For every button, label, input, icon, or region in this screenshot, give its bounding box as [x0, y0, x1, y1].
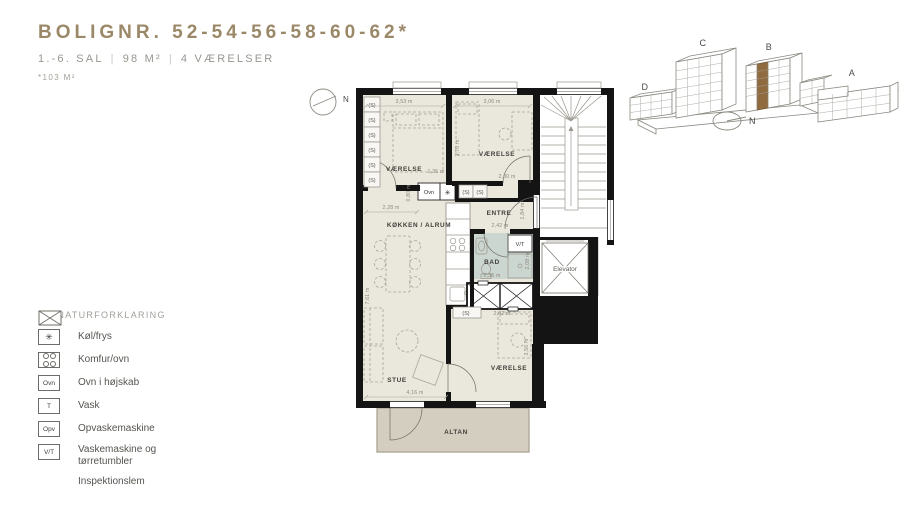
- room-label-bedroom2: VÆRELSE: [479, 151, 515, 158]
- room-label-bedroom3: VÆRELSE: [491, 365, 527, 372]
- dim-living-width: 4,16 m: [406, 390, 423, 396]
- oven-unit-label: Ovn: [424, 190, 434, 196]
- plan-compass: N: [310, 89, 349, 115]
- compass-north-label: N: [343, 95, 349, 104]
- elevator: Elevator: [542, 241, 588, 293]
- room-label-bedroom1: VÆRELSE: [386, 166, 422, 173]
- dim-living-depth: 7,61 m: [365, 287, 371, 304]
- closet-marker: (S): [368, 133, 375, 139]
- room-label-living: STUE: [387, 377, 407, 384]
- dim-bedroom3-depth: 3,56 m: [524, 338, 530, 355]
- elevator-label: Elevator: [553, 266, 578, 273]
- dim-bedroom2-bottom: 2,00 m: [498, 174, 515, 180]
- closet-marker: (S): [476, 190, 483, 196]
- room-label-bath: BAD: [484, 259, 500, 266]
- stairwell-floor: [540, 95, 607, 237]
- dim-bedroom1-width: 3,53 m: [395, 99, 412, 105]
- dim-bath-depth: 2,08 m: [525, 252, 531, 269]
- dim-bedroom1-inner: 1,35 m: [427, 169, 444, 175]
- closet-marker: (S): [368, 148, 375, 154]
- dim-bedroom1-bottom: 2,28 m: [382, 205, 399, 211]
- dim-bedroom2-depth: 3,70 m: [455, 139, 461, 156]
- dim-entry-door: 1,84 m: [520, 202, 526, 219]
- legend-label: Inspektionslem: [78, 476, 145, 488]
- building-a-label: A: [849, 68, 856, 78]
- building-b: B: [746, 42, 802, 112]
- dim-bath-width: 2,36 m: [483, 273, 500, 279]
- dim-bedroom1-door: 0,80 m: [406, 184, 412, 201]
- dim-entry-width: 2,42 m: [491, 223, 508, 229]
- room-label-kitchen: KØKKEN / ALRUM: [387, 222, 451, 229]
- site-plan: D C B: [630, 38, 898, 134]
- legend-item-inspection-hatch: Inspektionslem: [38, 474, 288, 490]
- closet-marker: (S): [368, 163, 375, 169]
- building-d: D: [630, 82, 682, 120]
- compass-north-label: N: [749, 116, 756, 126]
- building-b-label: B: [766, 42, 773, 52]
- fridge-snowflake-icon: ✳: [445, 189, 451, 197]
- closet-marker: (S): [368, 178, 375, 184]
- room-label-balcony: ALTAN: [444, 429, 468, 436]
- plan-and-site-svg: Ovn ✳ V/T: [0, 0, 905, 460]
- building-c: C: [676, 38, 736, 118]
- legend-item-shaft: [38, 497, 288, 513]
- closet-marker: (S): [368, 118, 375, 124]
- closet-marker: (S): [462, 311, 469, 317]
- dim-bedroom2-width: 3,06 m: [483, 99, 500, 105]
- dim-bedroom3-width: 2,42 m: [493, 311, 510, 317]
- installation-shaft: [467, 281, 533, 311]
- closet-marker: (S): [462, 190, 469, 196]
- washer-dryer-label: V/T: [516, 242, 525, 248]
- room-label-entry: ENTRE: [487, 210, 512, 217]
- building-c-label: C: [700, 38, 707, 48]
- compass-needle: [313, 96, 336, 106]
- building-d-label: D: [642, 82, 649, 92]
